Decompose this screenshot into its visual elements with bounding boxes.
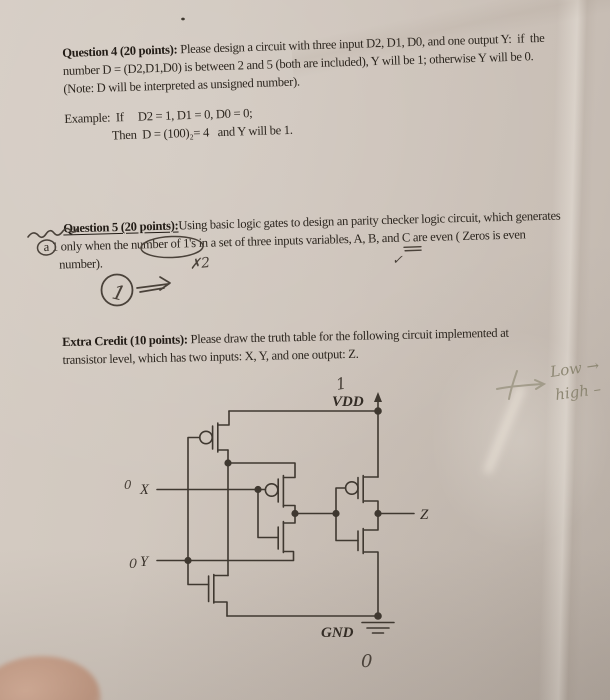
oval-around-number-of-1s — [141, 235, 204, 258]
even-double-underline — [404, 247, 421, 251]
gnd-logic-value: 0 — [361, 651, 372, 672]
checkmark-annotation: ✓ — [392, 253, 403, 268]
high-note: high – — [554, 380, 602, 404]
pencil-notes: Low → high – — [497, 356, 602, 404]
ink-speck — [181, 18, 185, 21]
circle-around-1 — [37, 239, 57, 256]
circled-score: 1 — [102, 275, 171, 306]
score-value: 1 — [110, 280, 128, 306]
margin-squiggle — [28, 229, 77, 238]
handwritten-annotations: ✗2 ✓ 1 1 0 0 0 Low → high – — [0, 0, 610, 700]
double-arrow-annotation — [137, 277, 170, 292]
vdd-logic-value: 1 — [334, 373, 347, 393]
photographed-exam-page: Question 4 (20 points): Please design a … — [0, 0, 610, 700]
pencil-scribble-arrow — [497, 371, 544, 399]
y-logic-value: 0 — [129, 557, 137, 572]
cross-2-annotation: ✗2 — [189, 255, 211, 273]
low-note: Low → — [548, 356, 601, 381]
x-logic-value: 0 — [124, 478, 132, 492]
